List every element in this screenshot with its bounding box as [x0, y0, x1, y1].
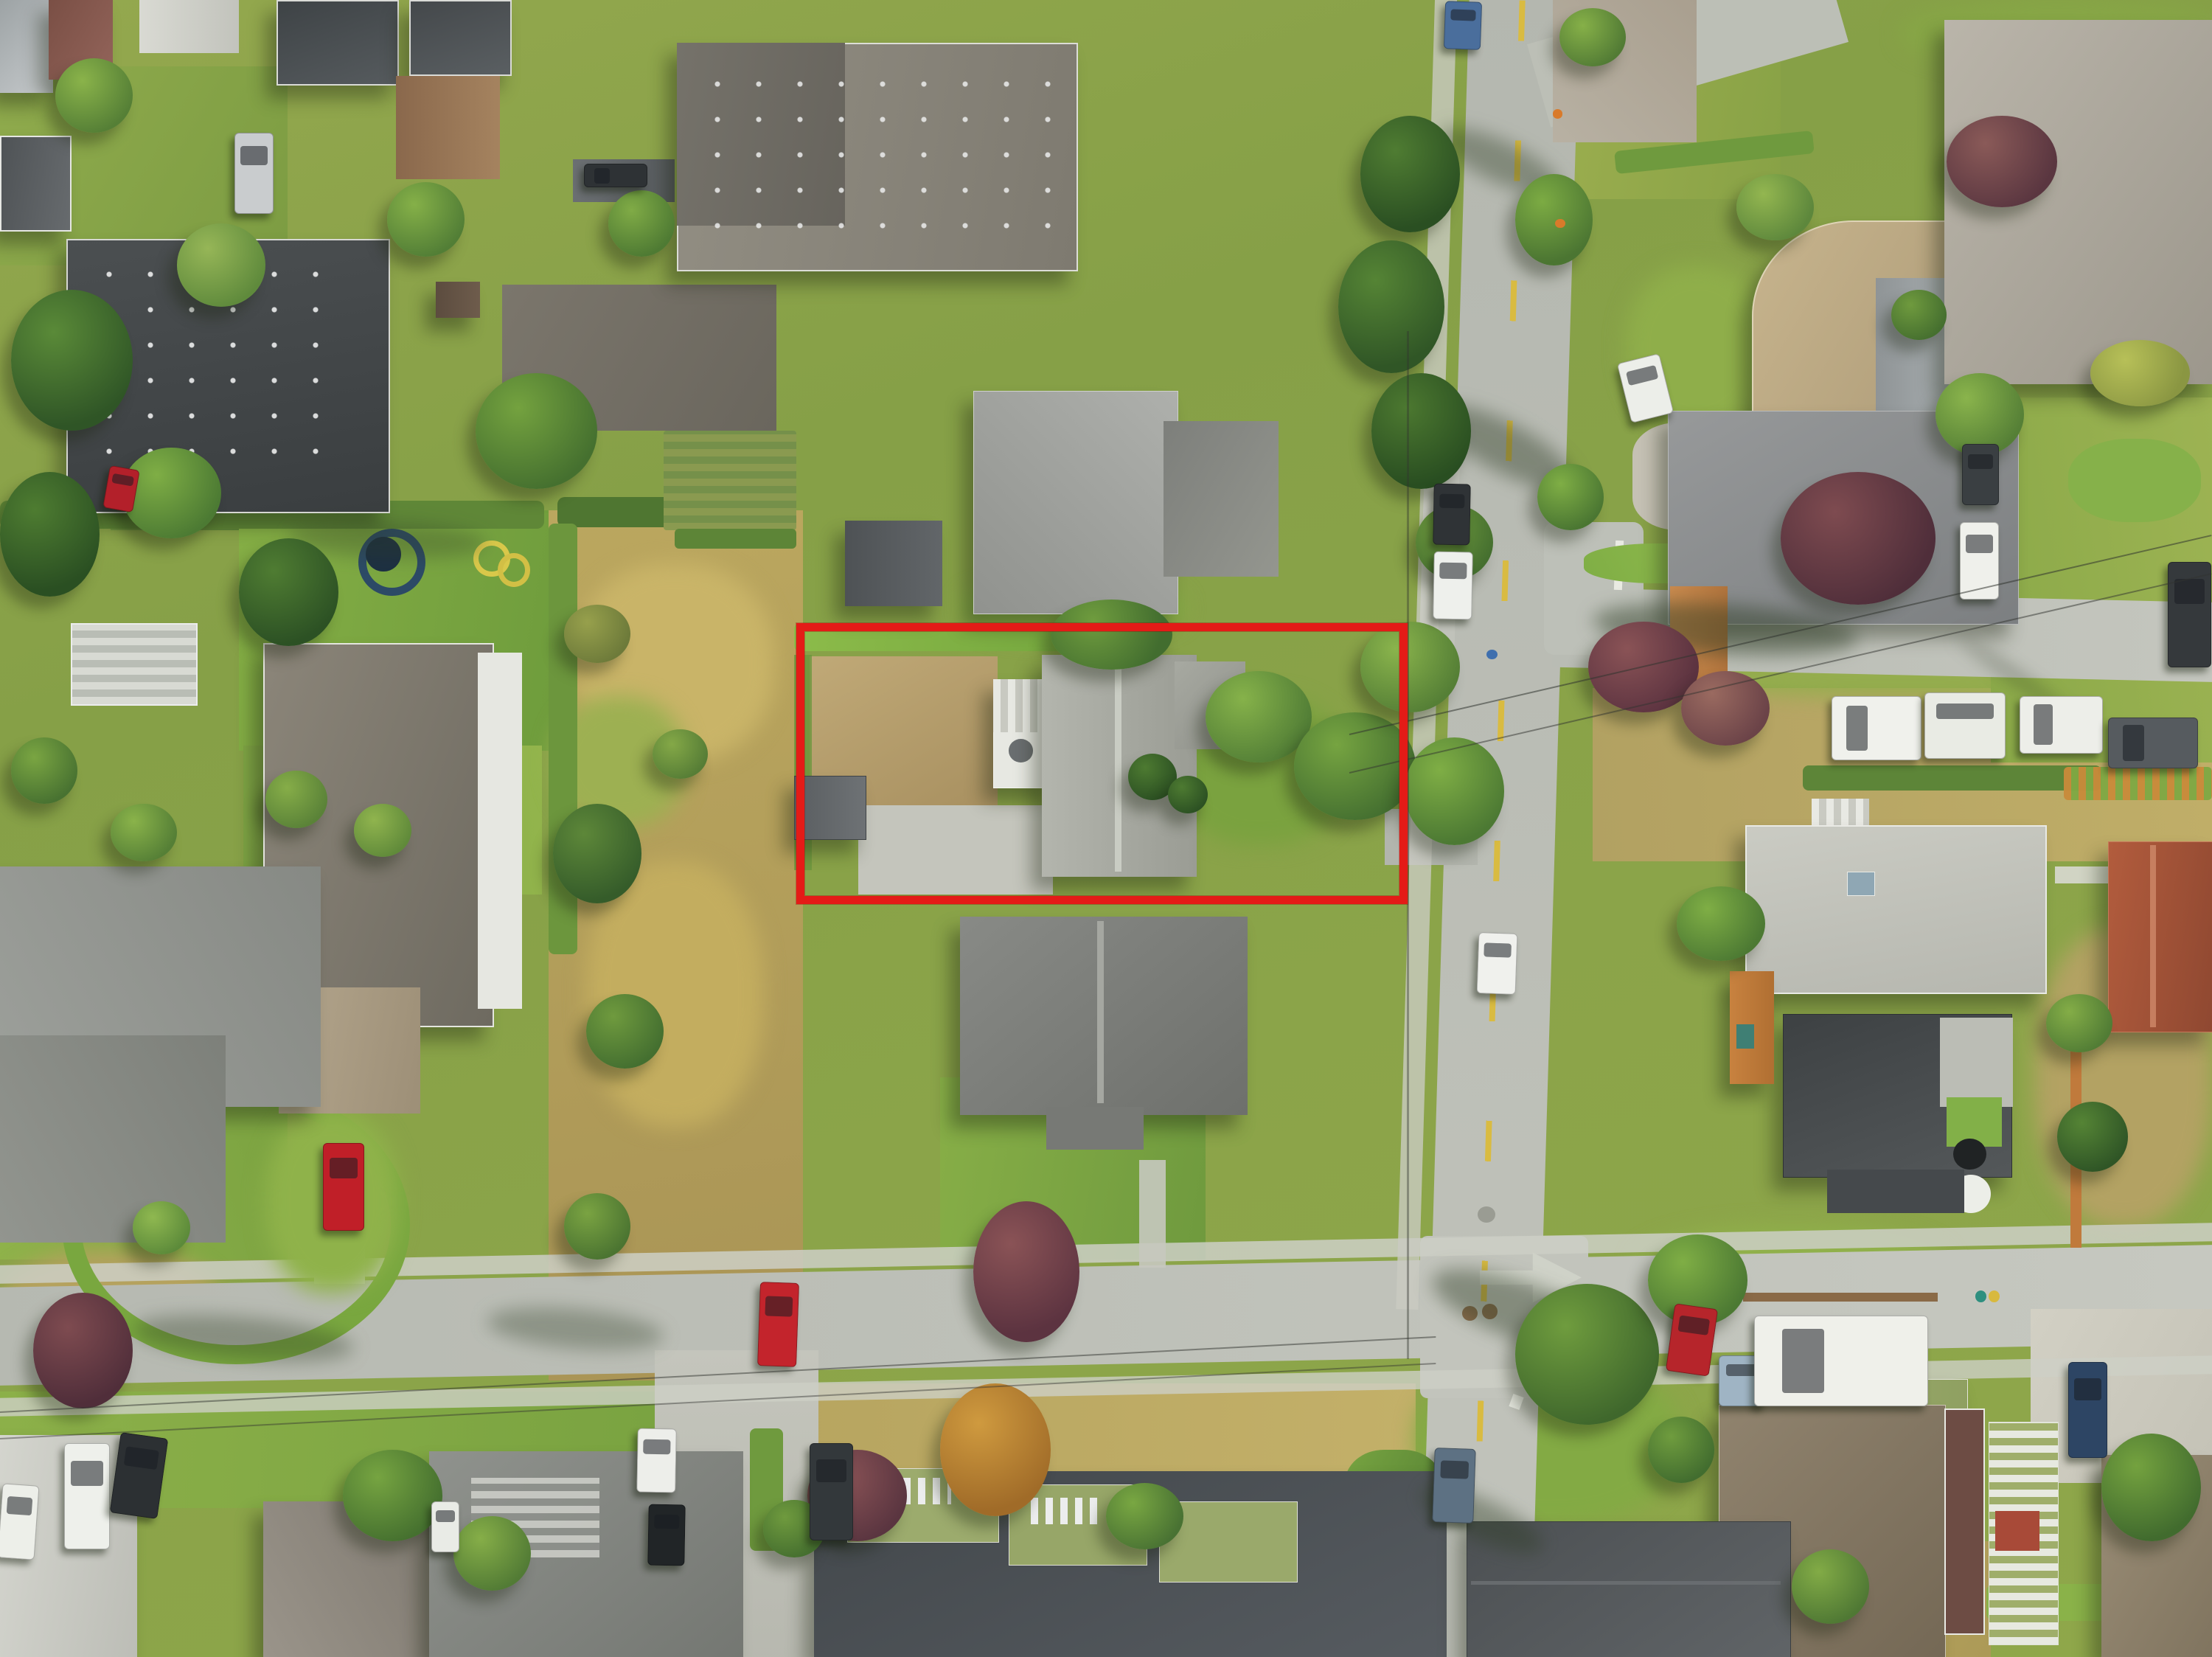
tree-bottom-right-2 [1792, 1549, 1869, 1624]
roof-small-light-topleft [139, 0, 239, 53]
tree-top-middle [608, 190, 675, 257]
wall-west-modern-white [478, 653, 522, 1009]
worker-orange-1 [1553, 109, 1563, 118]
tree-house19-west [1648, 1417, 1714, 1483]
pickup-gray-row-4 [2108, 718, 2198, 768]
drylot-bush-2 [586, 994, 664, 1069]
solar-panels-2 [1031, 1498, 1102, 1524]
conifer-trampoline-yard [239, 538, 338, 646]
suv-darkblue-driveway-windshield [2074, 1378, 2101, 1401]
roof-north-neighbor-wing [1164, 421, 1279, 577]
tree-bottom-2 [453, 1516, 531, 1591]
car-black-rear-lane [647, 1504, 685, 1566]
car-dark-carport [584, 164, 647, 187]
car-blue-top-edge-windshield [1450, 10, 1476, 21]
car-red-far-left-windshield [112, 473, 134, 486]
suv-dark-east-end-windshield [2174, 579, 2205, 604]
conifer-cluster-west-2 [0, 472, 100, 597]
tree-bottom-right [2101, 1434, 2201, 1541]
pickup-red-corner-windshield [1677, 1315, 1710, 1335]
glasshouse-structures [71, 623, 198, 706]
rooftop-wood-deck [396, 76, 500, 178]
path-south-neighbor [1139, 1160, 1166, 1268]
tree-top-1 [387, 182, 465, 257]
roof-bottom-dark-ridge [1471, 1581, 1781, 1585]
vegetable-garden-rows [664, 431, 796, 530]
roof-south-neighbor [960, 917, 1248, 1116]
fruit-tree-1 [265, 771, 327, 829]
worker-orange-2 [1555, 219, 1565, 228]
roof-townhouse-row-b [409, 0, 512, 76]
tree-by-side-lane [1935, 373, 2024, 456]
tree-west-3 [122, 448, 221, 539]
drylot-bush-dark [553, 804, 641, 903]
roof-house16-light [1745, 825, 2047, 994]
tree-orange-bottom [940, 1383, 1051, 1516]
conifer-right-mid [2057, 1102, 2128, 1171]
tree-topleft [55, 58, 133, 133]
tree-top-edge-right [1559, 8, 1626, 66]
van-white-row-1 [1832, 696, 1921, 760]
roof-white-ridge-house [0, 136, 72, 232]
conifer-cluster-west-1 [11, 290, 133, 431]
black-dome-tent [1953, 1139, 1986, 1170]
pickup-white-parked [1433, 552, 1473, 620]
pickup-white-parked-windshield [1439, 563, 1467, 579]
fruit-tree-2 [354, 804, 411, 857]
roof-house19-red-patch [1995, 1511, 2039, 1551]
rv-white-bottom-left [64, 1443, 110, 1549]
tree-yellowgreen-right [2090, 340, 2190, 406]
palm-shrub-left [133, 1201, 190, 1254]
car-white-driving [1477, 932, 1518, 995]
skylight-house16 [1847, 872, 1875, 896]
tree-road-east-north [1515, 174, 1593, 265]
drylot-bush-3 [653, 729, 708, 779]
van-white-row-1-windshield [1846, 706, 1868, 751]
roof-south-neighbor-ridge [1097, 921, 1104, 1103]
car-white-left-edge [0, 1484, 39, 1560]
suv-darkblue-driveway [2068, 1362, 2107, 1458]
camper-white-row-2-windshield [1936, 704, 1994, 719]
pickup-dark-parked-windshield [1439, 494, 1465, 509]
roof-terracotta-ridge [2150, 845, 2156, 1027]
car-red-west-driveway-windshield [330, 1158, 358, 1178]
car-white-left-edge-windshield [6, 1496, 32, 1515]
maple-purple-large [1781, 472, 1935, 605]
pickup-gray-row-4-windshield [2123, 725, 2144, 761]
tree-beige-house-east [1736, 174, 1814, 240]
terrace-house17 [1940, 1018, 2013, 1107]
car-red-west-driveway [323, 1143, 364, 1231]
roof-house17-lower-wing [1827, 1170, 1964, 1212]
property-boundary-outline [796, 623, 1408, 905]
van-white-row-3 [2020, 696, 2103, 754]
tree-top-2 [476, 373, 597, 489]
pickup-dark-parked [1433, 484, 1470, 546]
shrub-topright-house [1891, 290, 1947, 339]
aerial-photo-scene [0, 0, 2212, 1657]
wood-fence-house19 [1743, 1293, 1938, 1302]
sedan-bluegray-driving-windshield [1440, 1460, 1470, 1479]
tree-road-east-mid [1537, 464, 1604, 530]
car-black-rear-lane-windshield [654, 1515, 680, 1529]
tree-bottom-3 [1106, 1483, 1183, 1549]
van-white-beige-house-windshield [1626, 365, 1659, 386]
camper-white-row-2 [1924, 692, 2006, 759]
porch-south-neighbor [1046, 1107, 1144, 1150]
tree-east-of-driveway [1405, 737, 1504, 845]
rv-white-bottom-left-windshield [71, 1461, 102, 1486]
garage-north-neighbor [845, 521, 942, 607]
maple-far-left-bottom [33, 1293, 133, 1408]
drylot-shrub-south [564, 1193, 630, 1260]
car-white-rear-lane-windshield [643, 1439, 670, 1454]
pickup-red-corner [1666, 1303, 1718, 1376]
roofdeck-house19-maroon [1944, 1408, 1985, 1635]
roof-townhouse-row-a [276, 0, 399, 86]
maple-south-neighbor [973, 1201, 1079, 1342]
hedge-garden-south [675, 529, 796, 549]
manhole-intersection [1478, 1206, 1495, 1223]
maple-purple-topright [1947, 116, 2057, 207]
car-silver-top-left-windshield [240, 146, 268, 165]
car-white-driving-windshield [1484, 942, 1511, 958]
car-blue-top-edge [1444, 1, 1482, 50]
car-white-mid-bottom [431, 1501, 459, 1552]
roof-north-neighbor-main [973, 391, 1178, 614]
conifer-road-west-3 [1371, 373, 1471, 489]
sedan-bluegray-driving [1432, 1448, 1475, 1524]
rv-white-parked-windshield [1782, 1329, 1823, 1393]
maple-purple-east-2 [1681, 671, 1770, 746]
shrubs-right-garden [2046, 994, 2112, 1052]
tree-left-mid-2 [111, 804, 177, 862]
hedge-right-blobs [2068, 439, 2201, 521]
car-white-rear-lane [636, 1428, 677, 1493]
car-red-street-parked-windshield [765, 1296, 793, 1317]
car-dark-carport-windshield [594, 168, 609, 184]
van-dark-side-lane-windshield [1968, 454, 1994, 468]
roof-condo-vents [697, 66, 1051, 249]
tree-intersection-corner [1515, 1284, 1659, 1425]
sedan-white-side-lane-windshield [1966, 535, 1993, 553]
van-white-row-3-windshield [2034, 704, 2053, 745]
car-red-street-parked [757, 1282, 799, 1367]
teal-door [1736, 1024, 1754, 1049]
suv-dark-rear-lane [810, 1443, 853, 1540]
sedan-dark-bottom-left-windshield [124, 1446, 160, 1470]
conifer-road-west-2 [1338, 240, 1444, 373]
conifer-road-west-1 [1360, 116, 1460, 232]
car-white-mid-bottom-windshield [436, 1510, 455, 1522]
tree-west-of-house16 [1677, 886, 1765, 961]
tree-topleft-2 [177, 223, 265, 306]
lawn-ring-yellow-2 [498, 553, 530, 586]
suv-dark-rear-lane-windshield [816, 1459, 846, 1482]
car-silver-top-left [234, 133, 274, 214]
dry-lot-light-patch-2 [586, 861, 763, 1127]
roof-metal-topleft [0, 0, 53, 93]
hedge-behind-vans [1803, 765, 2101, 791]
bushes-left-mid [11, 737, 77, 804]
flowerbed-northeast [2064, 767, 2212, 800]
rv-white-parked [1754, 1316, 1928, 1406]
roof-terracotta [2108, 841, 2212, 1032]
tree-bottom-1 [343, 1450, 442, 1541]
roof-far-left-hip-lower [0, 1035, 226, 1243]
drylot-shrub-1 [564, 605, 630, 663]
van-dark-side-lane [1962, 444, 1999, 505]
garden-shed [436, 282, 480, 318]
white-garden-stairs [1812, 799, 1869, 825]
